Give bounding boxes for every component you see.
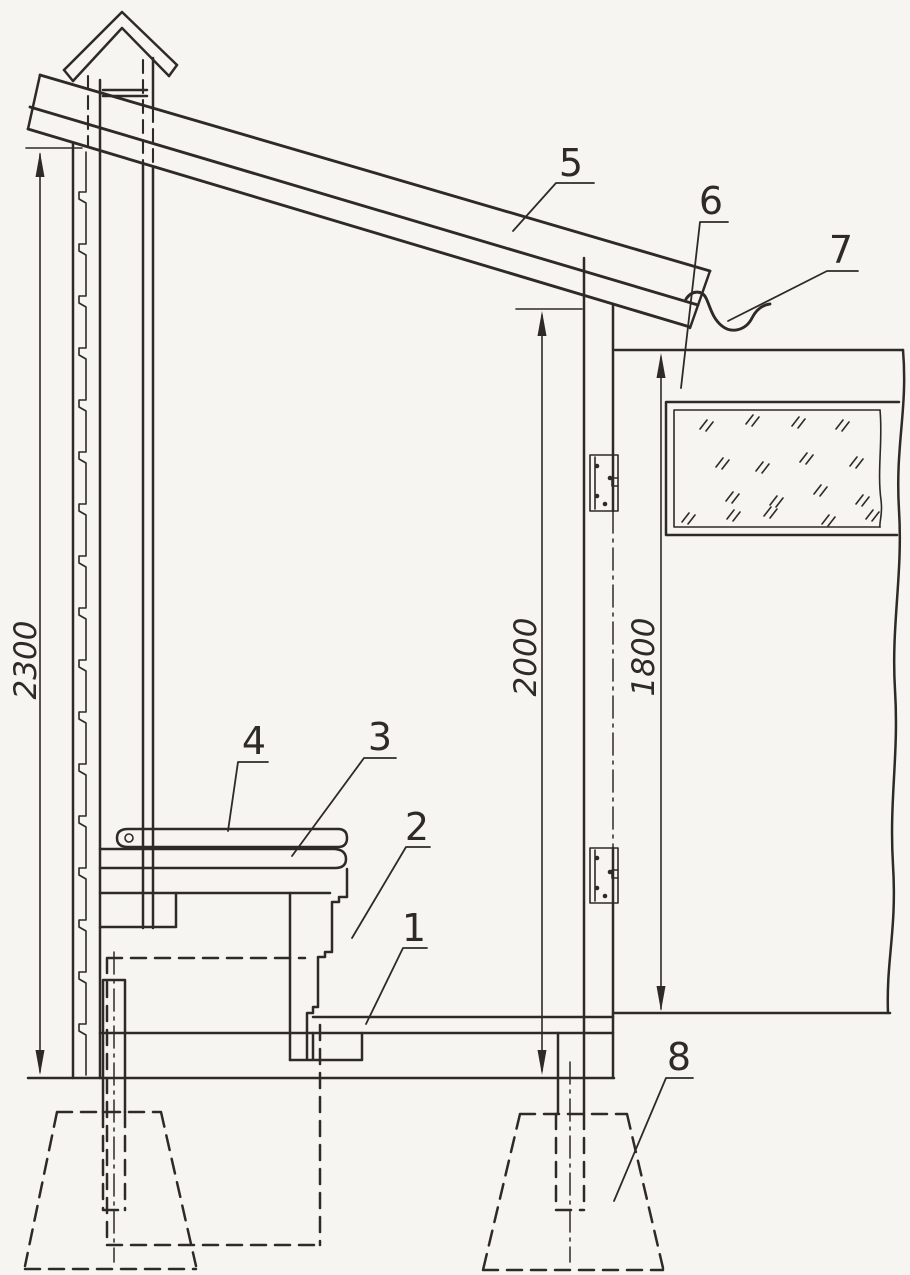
part-label-4-lid: 4 <box>228 719 268 831</box>
drawing-sheet: 2300 2000 1800 5 6 7 4 3 2 1 <box>0 0 910 1275</box>
dim-2000-arrow-down <box>538 1050 547 1075</box>
part-label-3-seat: 3 <box>292 715 396 856</box>
hinge-screw <box>595 886 600 891</box>
window-glass-hatch <box>682 415 879 526</box>
seat-board <box>100 849 346 868</box>
part-label-1-floor: 1 <box>366 906 427 1024</box>
part-label-5-roof: 5 <box>513 141 594 231</box>
label-5: 5 <box>559 141 583 185</box>
foundation-right <box>483 1114 663 1270</box>
dim-2000-value: 2000 <box>508 618 544 697</box>
label-8: 8 <box>667 1035 691 1079</box>
label-2: 2 <box>405 805 429 849</box>
roof-board-top-line <box>30 107 698 305</box>
vent-duct-bottom-tie <box>100 893 176 927</box>
dim-2300-arrow-down <box>36 1050 45 1075</box>
roof-panel <box>28 75 710 328</box>
vent-cap <box>64 12 177 96</box>
label-6: 6 <box>699 179 723 223</box>
window-inner-break <box>880 410 882 527</box>
foundation-right-outline <box>483 1114 663 1270</box>
back-wall-clapboard <box>79 152 86 1075</box>
dimension-2000: 2000 <box>508 309 582 1075</box>
front-support-post <box>556 1062 584 1262</box>
window-outer-frame <box>666 402 899 535</box>
label-6-leader <box>681 222 728 388</box>
roof-board-bottom-line <box>28 129 690 327</box>
dim-2000-arrow-up <box>538 311 547 336</box>
pit-outline <box>107 958 320 1245</box>
dim-1800-value: 1800 <box>626 618 662 697</box>
roof-sheet-top-line <box>40 75 710 271</box>
label-3-leader <box>292 758 396 856</box>
dim-2300-arrow-up <box>36 152 45 177</box>
hinge-screw <box>608 476 613 481</box>
dimension-2300: 2300 <box>8 148 82 1075</box>
part-label-7-drip: 7 <box>728 228 858 321</box>
vent-cap-outer-bars <box>64 12 177 70</box>
hinge-screw <box>595 464 600 469</box>
back-wall <box>73 80 100 1078</box>
dim-2300-value: 2300 <box>8 621 44 700</box>
label-8-leader <box>614 1078 693 1201</box>
label-7: 7 <box>829 228 853 272</box>
label-4-leader <box>228 762 268 831</box>
vent-cap-inner-bars <box>73 28 169 81</box>
label-3: 3 <box>368 715 392 759</box>
hinge-screw <box>595 856 600 861</box>
lid-hinge-pin <box>125 834 133 842</box>
panel-break-line <box>888 350 904 1013</box>
hinge-screw <box>603 502 608 507</box>
pedestal-plinth <box>290 1033 362 1060</box>
label-4: 4 <box>242 719 266 763</box>
door-window <box>666 402 899 535</box>
hinge-screw <box>603 894 608 899</box>
seat-assembly <box>100 829 362 1060</box>
outhouse-section-diagram: 2300 2000 1800 5 6 7 4 3 2 1 <box>0 0 910 1275</box>
label-7-leader <box>728 271 858 321</box>
roof-left-end-cut <box>28 75 40 129</box>
hinge-screw <box>595 494 600 499</box>
part-label-8-footing: 8 <box>614 1035 693 1201</box>
label-1-leader <box>366 948 427 1024</box>
dimension-1800: 1800 <box>626 353 666 1011</box>
door-frame <box>584 258 618 1113</box>
dim-1800-arrow-up <box>657 353 666 378</box>
label-1: 1 <box>402 906 426 950</box>
seat-lid <box>117 829 347 847</box>
dim-1800-arrow-down <box>657 986 666 1011</box>
drip-edge-curl <box>686 292 770 330</box>
hinge-screw <box>608 870 613 875</box>
